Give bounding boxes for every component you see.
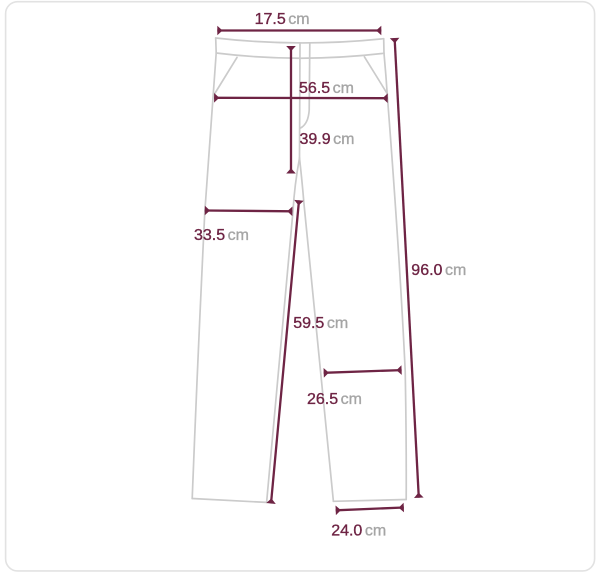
svg-text:96.0cm: 96.0cm [411,262,466,279]
svg-text:26.5cm: 26.5cm [307,391,362,408]
svg-text:39.9cm: 39.9cm [300,131,355,148]
svg-text:56.5cm: 56.5cm [299,80,354,97]
svg-text:33.5cm: 33.5cm [194,227,249,244]
svg-text:24.0cm: 24.0cm [331,522,386,539]
svg-text:17.5cm: 17.5cm [255,11,310,28]
svg-text:59.5cm: 59.5cm [293,315,348,332]
